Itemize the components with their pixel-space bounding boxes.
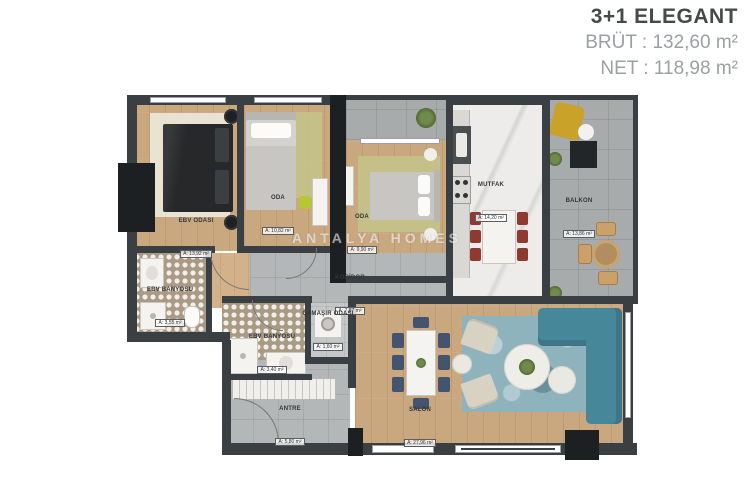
wall: [127, 332, 230, 342]
plan-brut-area: BRÜT : 132,60 m²: [585, 30, 738, 56]
sink: [456, 133, 467, 157]
window: [360, 138, 440, 144]
plant: [548, 152, 562, 166]
sliding-door: [455, 445, 561, 453]
desk: [312, 178, 328, 226]
wall: [542, 95, 550, 300]
patio-table: [592, 240, 620, 268]
dining-table: [406, 330, 436, 396]
room-label-living-room: SALON A: 27,96 m²: [394, 407, 446, 449]
wall: [548, 95, 638, 100]
wall: [540, 296, 638, 304]
room-label-master-bathroom: EBV BANYOSU A: 3,55 m²: [140, 287, 200, 329]
watermark: ANTALYA HOMES: [292, 230, 462, 246]
entry-wardrobe: [232, 378, 336, 400]
kitchen-chair: [517, 248, 528, 261]
bed2-headboard: [246, 112, 296, 120]
window: [150, 97, 226, 103]
side-table: [452, 354, 472, 374]
room-label-balcony: BALKON A: 13,86 m²: [554, 198, 604, 240]
shaft-column: [118, 163, 155, 232]
plan-net-area: NET : 118,98 m²: [585, 56, 738, 82]
dining-chair: [438, 333, 450, 348]
wall: [446, 95, 548, 105]
dining-chair: [392, 377, 404, 392]
bed3-headboard: [434, 170, 440, 222]
burner: [455, 193, 460, 198]
dining-chair: [392, 355, 404, 370]
dining-chair: [438, 355, 450, 370]
patio-chair: [578, 244, 592, 264]
plan-title: 3+1 ELEGANT: [585, 4, 738, 30]
coffee-table: [504, 344, 550, 390]
kitchen-chair: [517, 212, 528, 225]
plant: [519, 359, 535, 375]
bathroom-sink: [140, 258, 164, 288]
wall: [446, 95, 453, 300]
pillow: [418, 197, 430, 216]
coffee-table-small: [548, 366, 576, 394]
wall: [206, 253, 212, 333]
room-label-kitchen: MUTFAK A: 14,20 m²: [466, 182, 516, 224]
shaft-column: [348, 428, 363, 456]
bed3: [370, 172, 434, 220]
plant: [416, 108, 436, 128]
pillow: [215, 170, 229, 204]
room-label-master-bedroom: EBV ODASI A: 13,92 m²: [160, 218, 232, 260]
room-label-entry: ANTRE A: 5,80 m²: [262, 406, 318, 448]
wall: [237, 95, 244, 253]
sofa-section: [586, 308, 622, 424]
dining-chair: [392, 333, 404, 348]
room-label-bathroom: EBV BANYOSU A: 3,40 m²: [242, 334, 302, 376]
wall: [340, 95, 452, 100]
window: [625, 312, 631, 418]
plan-title-block: 3+1 ELEGANT BRÜT : 132,60 m² NET : 118,9…: [585, 4, 738, 82]
basin: [146, 266, 158, 280]
pillow: [251, 123, 291, 138]
desk-chair: [299, 196, 311, 209]
kitchen-chair: [470, 230, 481, 243]
burner: [455, 180, 460, 185]
kitchen-chair: [470, 248, 481, 261]
floor-plan-image: 3+1 ELEGANT BRÜT : 132,60 m² NET : 118,9…: [0, 0, 750, 500]
side-table: [578, 124, 594, 140]
pillow: [418, 175, 430, 194]
shaft-column: [565, 430, 599, 460]
wall: [222, 340, 231, 455]
room-label-laundry: ÇAMAŞIR ODASI A: 1,60 m²: [300, 311, 356, 353]
door-leaf: [461, 448, 555, 450]
dining-chair: [413, 317, 429, 328]
balcony-table-black: [570, 141, 597, 168]
patio-chair: [598, 271, 618, 285]
dining-chair: [438, 377, 450, 392]
window: [254, 97, 322, 103]
kitchen-chair: [517, 230, 528, 243]
wall: [305, 357, 350, 364]
plant: [416, 358, 426, 368]
pillow: [215, 128, 229, 162]
master-bed: [163, 124, 233, 212]
pouf: [424, 148, 437, 161]
wall: [633, 95, 638, 304]
kitchen-sink-cabinet: [452, 126, 471, 164]
